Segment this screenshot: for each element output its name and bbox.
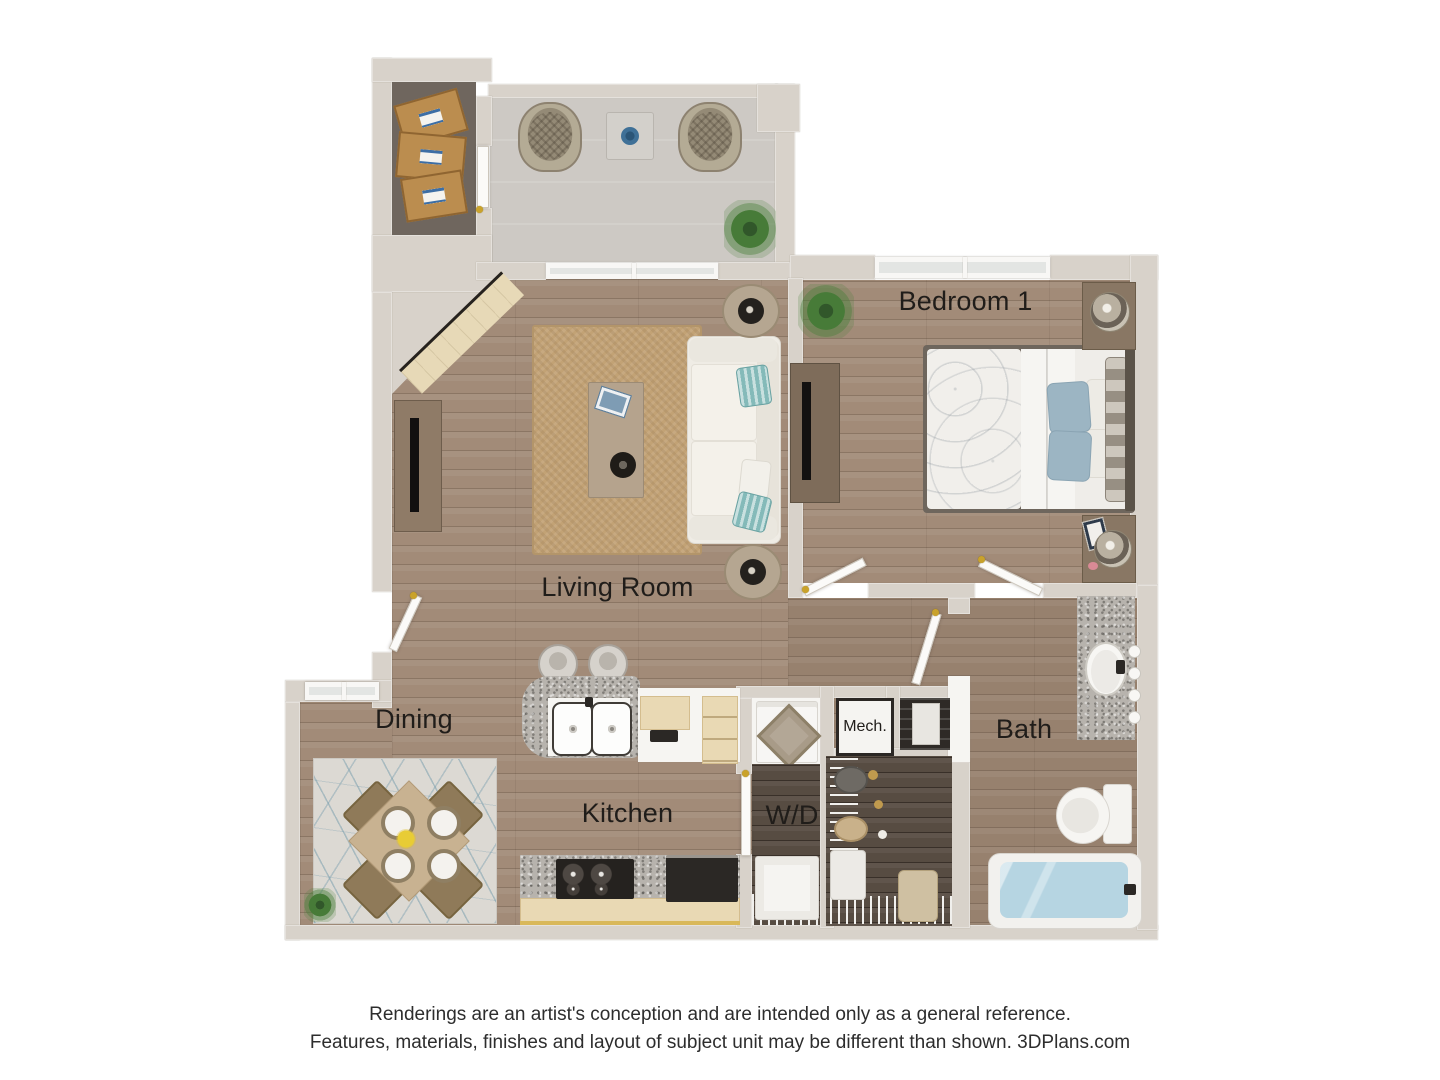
floor-plan: Mech. Bedroom 1 Living Room Dining Kitch… [0, 0, 1440, 1080]
room-label-bath: Bath [960, 714, 1088, 745]
storage-closet-door [477, 146, 489, 208]
place-setting [427, 806, 461, 840]
patio-sliding-door [546, 263, 718, 279]
bath-faucet [1116, 660, 1125, 674]
door-hinge [932, 609, 939, 616]
bathtub-water [1000, 862, 1128, 918]
nightstand-lamp [1094, 530, 1132, 568]
wall [285, 702, 300, 940]
door-hinge [476, 206, 483, 213]
dining-plant [304, 888, 336, 922]
toilet-bowl [1056, 787, 1110, 844]
disclaimer-text: Renderings are an artist's conception an… [0, 1001, 1440, 1057]
bedroom-tv-dresser [790, 363, 840, 503]
disclaimer-line-2: Features, materials, finishes and layout… [0, 1029, 1440, 1057]
sink-basin [591, 702, 632, 756]
side-table-lamp [722, 284, 780, 338]
linen-item [912, 703, 940, 745]
vanity-light-bulb [1128, 667, 1141, 680]
sofa-pillow-teal [735, 364, 772, 408]
nightstand-lamp [1090, 292, 1130, 332]
shelf-item-basket [834, 816, 868, 842]
shelf-item-bottle [878, 830, 887, 839]
place-setting [381, 849, 415, 883]
door-hinge [978, 556, 985, 563]
sofa-arm [689, 338, 777, 362]
room-label-kitchen: Kitchen [555, 798, 700, 829]
room-label-dining: Dining [350, 704, 478, 735]
patio-chair [518, 102, 582, 172]
upper-cabinet [640, 696, 690, 730]
bedroom-plant [798, 284, 854, 338]
table-centerpiece [396, 829, 416, 849]
wall [372, 235, 492, 292]
shelf-item-bottle [868, 770, 878, 780]
wall [372, 58, 492, 82]
disclaimer-line-1: Renderings are an artist's conception an… [0, 1001, 1440, 1029]
bed-duvet-floral [927, 349, 1021, 509]
room-label-bedroom-1: Bedroom 1 [868, 286, 1063, 317]
sink-basin [552, 702, 593, 756]
door-hinge [410, 592, 417, 599]
place-setting [427, 849, 461, 883]
shelf-item-bottle [874, 800, 883, 809]
dining-window [305, 682, 379, 700]
room-label-living-room: Living Room [520, 572, 715, 603]
wall [476, 96, 492, 146]
tub-faucet [1124, 884, 1136, 895]
nightstand-flowers [1088, 562, 1098, 570]
shelf-item-bag [898, 870, 938, 922]
wall [950, 762, 970, 928]
vanity-light-bulb [1128, 711, 1141, 724]
wall [790, 255, 875, 280]
bed-pillow-blue [1046, 381, 1091, 435]
bed-pillow-blue [1047, 430, 1093, 482]
coffee-table-tray [610, 452, 636, 478]
patio-table-plate [621, 127, 639, 145]
wall [372, 292, 392, 592]
patio-chair [678, 102, 742, 172]
sink-faucet [585, 697, 593, 707]
side-table-lamp [724, 544, 782, 600]
dryer [755, 856, 819, 920]
wall [948, 598, 970, 614]
shelf-item-bin [830, 850, 866, 900]
wall [718, 262, 790, 280]
wall [476, 262, 546, 280]
patio-plant [724, 200, 776, 258]
patio-table [606, 112, 654, 160]
mechanical-label: Mech. [843, 718, 887, 736]
black-appliance [666, 855, 738, 902]
room-label-wd: W/D [752, 800, 832, 831]
stove-cooktop [556, 859, 634, 899]
door-hinge [802, 586, 809, 593]
bedroom-tv [802, 382, 811, 480]
vanity-light-bulb [1128, 689, 1141, 702]
kitchen-kickplate [520, 921, 740, 925]
pantry-cabinet [702, 696, 738, 764]
bedroom-window [875, 257, 1050, 278]
wall [868, 583, 975, 598]
wall [757, 84, 800, 132]
headboard [1125, 347, 1135, 511]
shelf-item-basket [834, 766, 868, 794]
vanity-light-bulb [1128, 645, 1141, 658]
wall [736, 686, 956, 698]
door-hinge [742, 770, 749, 777]
coffee-maker [650, 730, 678, 742]
mechanical-closet: Mech. [836, 698, 894, 756]
tv [410, 418, 419, 512]
wall [488, 84, 778, 98]
linen-closet [900, 698, 950, 750]
laundry-door [741, 774, 751, 856]
